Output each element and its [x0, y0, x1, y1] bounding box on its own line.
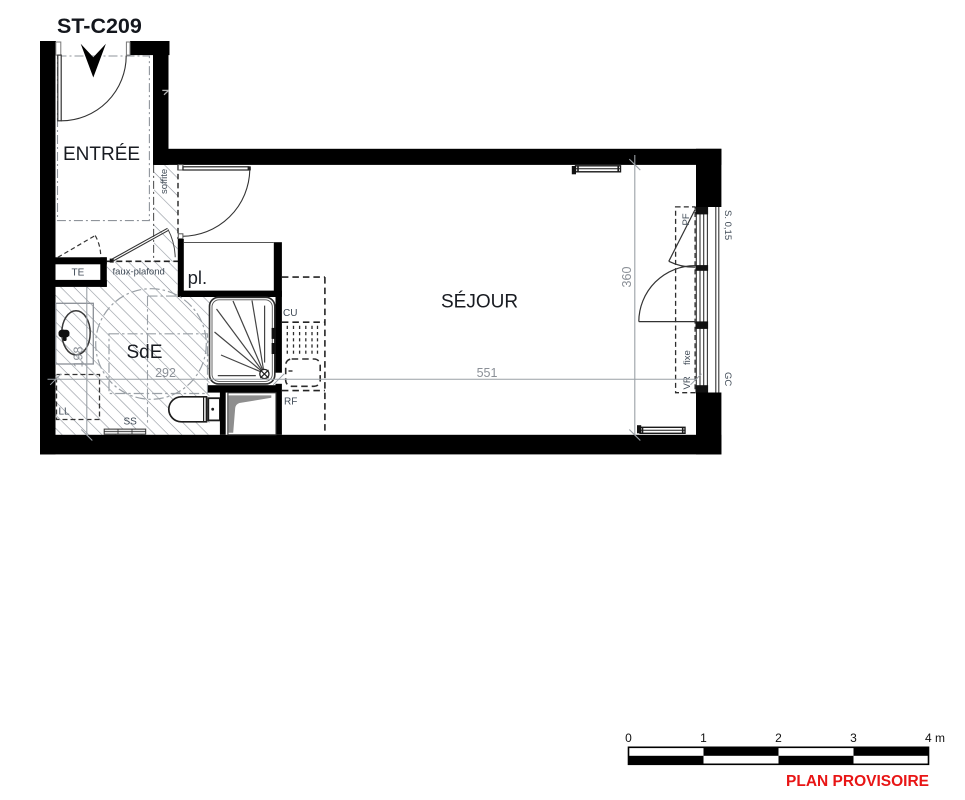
svg-text:ST-C209: ST-C209	[57, 14, 142, 38]
svg-text:SdE: SdE	[127, 342, 163, 363]
svg-text:198: 198	[72, 347, 86, 368]
svg-text:fixe: fixe	[682, 350, 693, 365]
svg-text:0: 0	[625, 731, 632, 745]
svg-text:SS: SS	[124, 417, 138, 428]
svg-text:TE: TE	[72, 268, 85, 279]
svg-text:RF: RF	[284, 397, 297, 408]
svg-text:pl.: pl.	[188, 267, 208, 288]
svg-text:faux-plafond: faux-plafond	[113, 267, 165, 278]
svg-text:3: 3	[850, 731, 857, 745]
svg-text:2: 2	[775, 731, 782, 745]
svg-text:292: 292	[155, 366, 176, 380]
svg-text:PLAN PROVISOIRE: PLAN PROVISOIRE	[786, 773, 929, 790]
svg-text:GC: GC	[722, 372, 733, 386]
svg-text:S. 0,15: S. 0,15	[722, 210, 733, 240]
svg-text:551: 551	[477, 366, 498, 380]
svg-text:LL: LL	[59, 407, 71, 418]
svg-text:SÉJOUR: SÉJOUR	[441, 292, 518, 313]
svg-text:soffite: soffite	[159, 169, 170, 194]
svg-text:4 m: 4 m	[925, 731, 945, 745]
svg-text:PF: PF	[681, 213, 692, 225]
svg-text:360: 360	[620, 267, 634, 288]
svg-text:ENTRÉE: ENTRÉE	[63, 144, 140, 165]
svg-text:CU: CU	[283, 308, 297, 319]
svg-text:VR: VR	[682, 376, 693, 389]
svg-text:1: 1	[700, 731, 707, 745]
